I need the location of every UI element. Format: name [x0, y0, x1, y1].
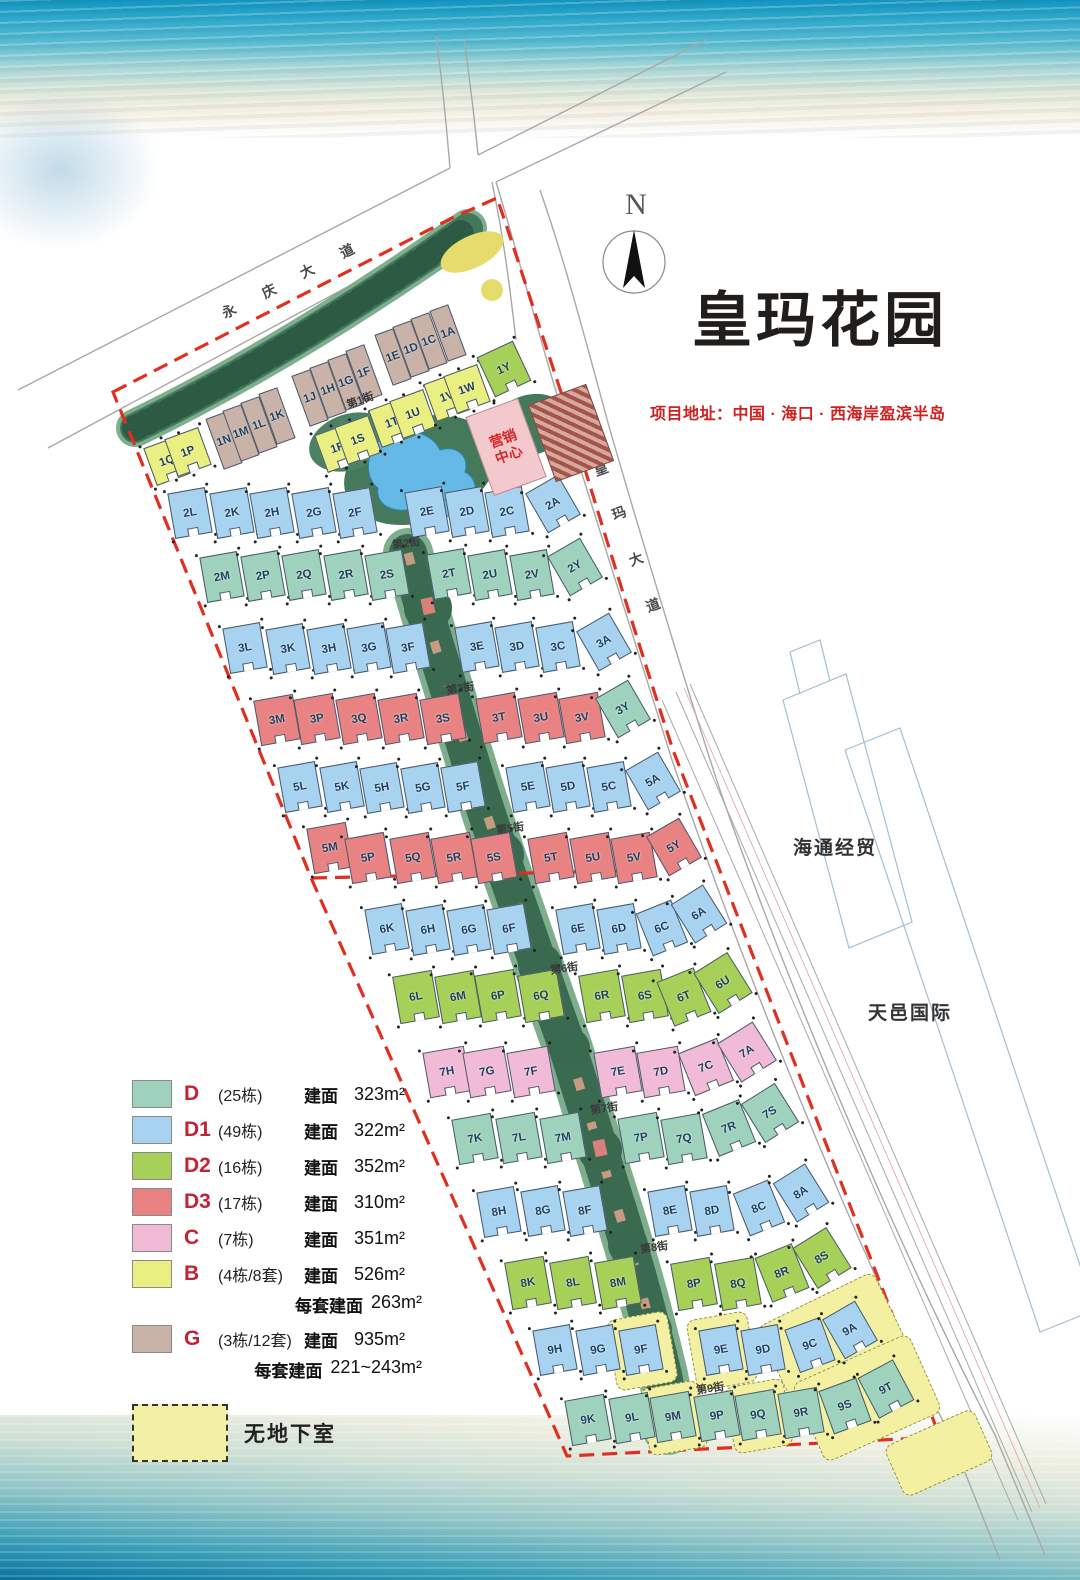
building-7f: 7F — [506, 1046, 555, 1099]
building-label: 6D — [611, 922, 628, 936]
building-label: 6T — [676, 989, 693, 1005]
building-label: 2Y — [566, 558, 584, 575]
building-label: 3S — [435, 712, 451, 726]
building-6d: 6D — [596, 903, 641, 955]
building-label: 8R — [773, 1265, 791, 1282]
building-7m: 7M — [539, 1112, 586, 1164]
building-label: 5D — [560, 780, 577, 794]
building-label: 5Q — [404, 851, 421, 865]
building-label: 3U — [533, 711, 550, 725]
building-2f: 2F — [332, 487, 377, 539]
building-7l: 7L — [495, 1112, 542, 1164]
building-3c: 3C — [535, 621, 580, 673]
legend-count: (49栋) — [218, 1118, 304, 1142]
building-label: 8A — [792, 1184, 811, 1202]
building-label: 9H — [547, 1343, 564, 1357]
entry-road — [492, 182, 516, 340]
legend-row-d: D (25栋) 建面 323m² — [132, 1080, 422, 1108]
building-label: 5T — [543, 851, 558, 865]
building-label: 8M — [609, 1276, 627, 1291]
building-label: 1E — [384, 349, 401, 365]
building-2k: 2K — [209, 487, 254, 539]
building-3e: 3E — [454, 621, 499, 673]
building-label: 5F — [455, 780, 470, 794]
building-label: 6H — [420, 923, 437, 937]
legend-code: D1 — [184, 1118, 218, 1142]
haitong-parcel-outline — [783, 640, 912, 948]
building-9l: 9L — [608, 1392, 655, 1444]
building-5s: 5S — [470, 832, 517, 884]
building-2t: 2T — [426, 548, 471, 600]
marketing-center-label: 营销 中心 — [487, 426, 525, 468]
building-label: 6A — [690, 905, 709, 923]
building-9g: 9G — [575, 1324, 620, 1376]
building-label: 5P — [360, 851, 376, 865]
legend-area-value: 526m² — [354, 1264, 405, 1285]
flower-bed — [481, 279, 503, 301]
building-3h: 3H — [306, 623, 351, 675]
building-label: 2U — [482, 568, 499, 582]
building-label: 2S — [379, 568, 395, 582]
building-label: 9R — [793, 1406, 810, 1420]
building-2p: 2P — [240, 550, 285, 602]
building-5t: 5T — [527, 832, 574, 884]
legend-area-label: 建面 — [304, 1327, 354, 1352]
building-6p: 6P — [474, 969, 522, 1023]
building-8m: 8M — [594, 1256, 642, 1310]
building-label: 6K — [379, 922, 396, 936]
legend-area-label: 建面 — [304, 1082, 354, 1107]
building-label: 6F — [501, 922, 516, 936]
building-label: 2T — [441, 567, 456, 581]
legend-count: (3栋/12套) — [218, 1327, 304, 1351]
building-label: 7D — [653, 1065, 670, 1079]
building-label: 5E — [520, 780, 536, 794]
building-label: 5V — [626, 851, 642, 865]
building-label: 5C — [601, 780, 618, 794]
building-label: 6S — [637, 989, 653, 1003]
building-3d: 3D — [494, 621, 539, 673]
building-3r: 3R — [377, 693, 424, 745]
north-road-edge — [436, 36, 450, 168]
building-label: 8G — [534, 1204, 551, 1218]
legend-row-b: B (4栋/8套) 建面 526m² — [132, 1260, 422, 1288]
legend-per-unit-value: 221~243m² — [330, 1357, 422, 1382]
legend-row-c: C (7栋) 建面 351m² — [132, 1224, 422, 1252]
building-8k: 8K — [504, 1256, 552, 1310]
building-label: 9S — [836, 1398, 853, 1414]
building-label: 1Y — [495, 361, 513, 378]
building-7q: 7Q — [660, 1113, 707, 1165]
building-label: 9A — [841, 1321, 860, 1339]
building-label: 3Q — [350, 712, 367, 726]
building-label: 1U — [404, 406, 422, 422]
legend-swatch-d2 — [132, 1152, 172, 1180]
project-address: 项目地址：中国 · 海口 · 西海岸盈滨半岛 — [650, 400, 1010, 424]
building-label: 2K — [224, 506, 241, 520]
legend-area-value: 323m² — [354, 1084, 405, 1105]
building-label: 8Q — [729, 1277, 746, 1291]
building-label: 2C — [499, 505, 516, 519]
legend-area-label: 建面 — [304, 1262, 354, 1287]
legend-per-unit-value: 263m² — [371, 1292, 422, 1317]
no-basement-label: 无地下室 — [244, 1418, 336, 1448]
building-label: 3R — [393, 712, 410, 726]
legend-count: (25栋) — [218, 1082, 304, 1106]
building-label: 2V — [524, 568, 540, 582]
building-label: 1A — [439, 325, 457, 341]
legend-code: C — [184, 1226, 218, 1250]
building-label: 3H — [321, 642, 338, 656]
neighbor-label-tianyi: 天邑国际 — [868, 998, 952, 1025]
legend-swatch-d1 — [132, 1116, 172, 1144]
building-label: 3G — [360, 641, 377, 655]
building-label: 6U — [714, 974, 733, 992]
building-label: 3K — [280, 642, 297, 656]
legend-swatch-g — [132, 1325, 172, 1353]
building-label: 2D — [459, 505, 476, 519]
building-label: 8D — [704, 1204, 721, 1218]
building-6g: 6G — [446, 904, 491, 956]
building-label: 1L — [251, 417, 268, 433]
north-road-edge — [464, 40, 478, 155]
building-label: 6L — [408, 990, 423, 1004]
legend-code: G — [184, 1327, 218, 1351]
building-label: 6M — [449, 990, 467, 1005]
building-label: 5H — [374, 781, 391, 795]
building-label: 1M — [231, 425, 250, 442]
legend-code: D3 — [184, 1190, 218, 1214]
building-6f: 6F — [486, 903, 531, 955]
legend-area-label: 建面 — [304, 1154, 354, 1179]
legend-count: (16栋) — [218, 1154, 304, 1178]
building-label: 5Y — [665, 838, 683, 855]
building-3t: 3T — [475, 692, 522, 744]
building-8f: 8F — [562, 1185, 607, 1237]
building-label: 9M — [664, 1410, 682, 1425]
no-basement-swatch — [132, 1404, 228, 1462]
building-label: 1J — [302, 390, 318, 406]
building-label: 9G — [589, 1343, 606, 1357]
legend-code: B — [184, 1262, 218, 1286]
building-label: 9F — [633, 1343, 648, 1357]
building-label: 8C — [750, 1200, 768, 1217]
building-8p: 8P — [670, 1257, 718, 1311]
building-label: 2M — [213, 570, 231, 585]
building-3k: 3K — [265, 623, 310, 675]
legend-row-d2: D2 (16栋) 建面 352m² — [132, 1152, 422, 1180]
building-label: 9C — [801, 1337, 819, 1353]
building-5k: 5K — [319, 761, 364, 813]
building-label: 7P — [633, 1131, 649, 1145]
building-6r: 6R — [578, 969, 626, 1023]
building-label: 1F — [356, 365, 373, 381]
building-label: 2R — [338, 568, 355, 582]
legend-row-d3: D3 (17栋) 建面 310m² — [132, 1188, 422, 1216]
legend-area-value: 322m² — [354, 1120, 405, 1141]
legend-area-value: 351m² — [354, 1228, 405, 1249]
building-label: 1K — [268, 408, 286, 424]
legend-per-unit-label: 每套建面 — [254, 1357, 322, 1382]
compass-north-label: N — [596, 190, 676, 220]
building-label: 9Q — [749, 1408, 766, 1422]
building-3f: 3F — [385, 622, 430, 674]
building-label: 9P — [709, 1409, 725, 1423]
building-3l: 3L — [222, 622, 267, 674]
building-label: 1W — [457, 380, 477, 397]
building-label: 2Q — [295, 568, 312, 582]
building-6h: 6H — [405, 904, 450, 956]
building-label: 5M — [321, 841, 339, 856]
building-label: 6E — [570, 922, 586, 936]
building-label: 8P — [686, 1277, 702, 1291]
building-label: 7K — [467, 1132, 484, 1146]
building-5h: 5H — [359, 762, 404, 814]
building-label: 6Q — [532, 989, 549, 1003]
building-label: 7A — [738, 1043, 757, 1061]
building-2d: 2D — [444, 486, 489, 538]
building-2m: 2M — [199, 551, 244, 603]
building-label: 2P — [255, 569, 271, 583]
legend-row-g-per-unit: 每套建面 221~243m² — [132, 1357, 422, 1382]
building-label: 5K — [334, 780, 351, 794]
tianyi-parcel-outline — [845, 728, 1080, 1332]
building-label: 7F — [523, 1065, 538, 1079]
building-label: 2A — [544, 495, 563, 513]
legend-area-label: 建面 — [304, 1226, 354, 1251]
building-3q: 3Q — [335, 693, 382, 745]
legend-swatch-b — [132, 1260, 172, 1288]
legend-row-no-basement: 无地下室 — [132, 1404, 422, 1462]
building-2l: 2L — [167, 487, 212, 539]
building-5e: 5E — [505, 761, 550, 813]
building-label: 8S — [813, 1249, 831, 1267]
building-3p: 3P — [293, 693, 340, 745]
legend-swatch-d3 — [132, 1188, 172, 1216]
legend-row-d1: D1 (49栋) 建面 322m² — [132, 1116, 422, 1144]
building-2c: 2C — [484, 486, 529, 538]
building-5g: 5G — [400, 762, 445, 814]
building-label: 7C — [697, 1059, 715, 1076]
building-label: 9L — [624, 1411, 639, 1425]
legend-area-value: 352m² — [354, 1156, 405, 1177]
building-label: 3D — [509, 640, 526, 654]
legend-count: (17栋) — [218, 1190, 304, 1214]
building-label: 8H — [491, 1205, 508, 1219]
legend-swatch-c — [132, 1224, 172, 1252]
building-label: 8L — [565, 1276, 580, 1290]
building-5c: 5C — [586, 761, 631, 813]
building-9d: 9D — [740, 1324, 785, 1376]
building-label: 3V — [574, 711, 590, 725]
building-8l: 8L — [549, 1256, 597, 1310]
building-7p: 7P — [617, 1112, 664, 1164]
building-2h: 2H — [249, 487, 294, 539]
building-6k: 6K — [364, 903, 409, 955]
legend-area-value: 935m² — [354, 1329, 405, 1350]
building-9f: 9F — [618, 1324, 663, 1376]
building-label: 9E — [713, 1343, 729, 1357]
building-6e: 6E — [555, 903, 600, 955]
legend-area-value: 310m² — [354, 1192, 405, 1213]
building-9r: 9R — [777, 1387, 824, 1439]
legend-area-label: 建面 — [304, 1190, 354, 1215]
building-label: 6C — [653, 920, 671, 937]
neighbor-label-haitong: 海通经贸 — [793, 833, 877, 860]
building-2r: 2R — [323, 549, 368, 601]
building-9p: 9P — [693, 1390, 740, 1442]
building-label: 3A — [595, 633, 614, 651]
building-2g: 2G — [291, 487, 336, 539]
building-label: 5U — [585, 851, 602, 865]
building-7e: 7E — [593, 1046, 642, 1099]
building-label: 6R — [594, 989, 611, 1003]
building-label: 2H — [264, 506, 281, 520]
building-label: 2F — [347, 506, 362, 520]
building-9q: 9Q — [734, 1389, 781, 1441]
building-label: 7S — [761, 1104, 779, 1122]
site-plan-poster: { "title": "皇玛花园", "address": "项目地址：中国 ·… — [0, 0, 1080, 1580]
building-5f: 5F — [440, 761, 485, 813]
building-5l: 5L — [277, 761, 322, 813]
building-label: 7G — [478, 1065, 495, 1079]
building-6q: 6Q — [517, 969, 565, 1023]
building-label: 2G — [305, 506, 322, 520]
building-label: 1H — [319, 382, 337, 398]
building-label: 5S — [486, 851, 502, 865]
building-label: 5A — [644, 772, 663, 790]
building-label: 9D — [755, 1343, 772, 1357]
building-9e: 9E — [698, 1324, 743, 1376]
building-label: 3F — [400, 641, 415, 655]
building-7k: 7K — [451, 1113, 498, 1165]
building-8q: 8Q — [714, 1257, 762, 1311]
building-label: 9T — [877, 1381, 894, 1398]
building-2e: 2E — [404, 486, 449, 538]
building-label: 3T — [491, 711, 506, 725]
building-label: 5G — [414, 781, 431, 795]
building-label: 5L — [292, 780, 307, 794]
building-label: 3L — [237, 641, 252, 655]
page-title: 皇玛花园 — [655, 272, 985, 359]
building-9m: 9M — [649, 1391, 696, 1443]
building-label: 1P — [179, 444, 196, 460]
building-label: 3C — [550, 640, 567, 654]
legend-swatch-d — [132, 1080, 172, 1108]
building-label: 7H — [439, 1065, 456, 1079]
building-8e: 8E — [647, 1185, 692, 1237]
building-label: 3E — [469, 640, 485, 654]
building-2u: 2U — [467, 549, 512, 601]
building-label: 7Q — [675, 1132, 692, 1146]
building-label: 8K — [520, 1276, 537, 1290]
building-5d: 5D — [545, 761, 590, 813]
building-label: 7M — [554, 1131, 572, 1146]
legend-count: (7栋) — [218, 1226, 304, 1250]
building-label: 8E — [662, 1204, 678, 1218]
building-label: 1G — [337, 374, 356, 391]
building-7g: 7G — [462, 1046, 511, 1099]
building-label: 1D — [402, 341, 420, 357]
building-3s: 3S — [419, 693, 466, 745]
building-2q: 2Q — [281, 549, 326, 601]
building-label: 9K — [580, 1413, 597, 1427]
building-9k: 9K — [564, 1394, 611, 1446]
legend-per-unit-label: 每套建面 — [295, 1292, 363, 1317]
building-label: 2L — [182, 506, 197, 520]
legend-count: (4栋/8套) — [218, 1262, 304, 1286]
building-label: 6G — [460, 923, 477, 937]
building-label: 3Y — [614, 700, 632, 717]
building-label: 3M — [268, 713, 286, 728]
building-9h: 9H — [532, 1324, 577, 1376]
legend-code: D2 — [184, 1154, 218, 1178]
building-8h: 8H — [476, 1186, 521, 1238]
legend-area-label: 建面 — [304, 1118, 354, 1143]
building-label: 1S — [349, 432, 366, 448]
legend-code: D — [184, 1082, 218, 1106]
building-label: 8F — [577, 1204, 592, 1218]
building-5p: 5P — [344, 832, 391, 884]
building-6l: 6L — [392, 970, 440, 1024]
building-2s: 2S — [364, 549, 409, 601]
building-label: 2E — [419, 505, 435, 519]
building-label: 7E — [610, 1065, 626, 1079]
building-label: 7L — [511, 1131, 526, 1145]
building-label: 3P — [309, 712, 325, 726]
legend-row-b-per-unit: 每套建面 263m² — [132, 1292, 422, 1317]
building-label: 6P — [490, 989, 506, 1003]
building-label: 5R — [446, 851, 463, 865]
building-label: 7R — [720, 1120, 738, 1137]
legend-row-g: G (3栋/12套) 建面 935m² — [132, 1325, 422, 1353]
legend: D (25栋) 建面 323m² D1 (49栋) 建面 322m² D2 (1… — [132, 1080, 422, 1462]
building-8g: 8G — [520, 1185, 565, 1237]
building-label: 1C — [420, 333, 438, 349]
